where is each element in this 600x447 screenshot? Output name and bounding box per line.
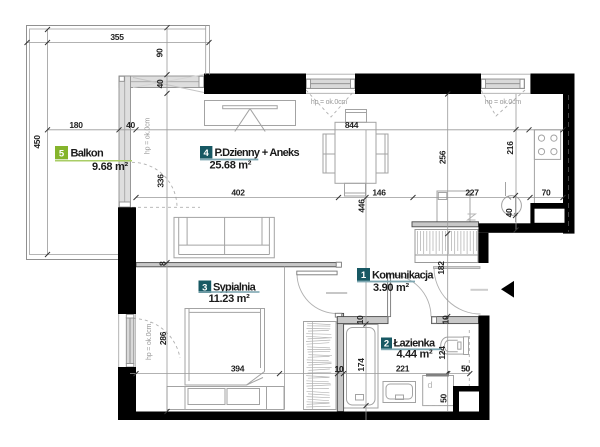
svg-text:P.Dzienny + Aneks: P.Dzienny + Aneks — [215, 147, 300, 159]
svg-text:11.23 m²: 11.23 m² — [209, 293, 251, 305]
svg-text:3.90 m²: 3.90 m² — [373, 282, 409, 294]
svg-text:146: 146 — [372, 188, 386, 198]
svg-text:hp = ok.0cm: hp = ok.0cm — [311, 99, 347, 106]
svg-text:5: 5 — [59, 148, 65, 159]
svg-text:446: 446 — [357, 199, 367, 213]
svg-text:221: 221 — [396, 364, 410, 374]
svg-text:4: 4 — [204, 148, 210, 159]
svg-text:256: 256 — [438, 150, 448, 164]
svg-text:10: 10 — [441, 315, 451, 324]
svg-text:40: 40 — [126, 120, 135, 130]
svg-text:336: 336 — [156, 174, 166, 188]
svg-text:70: 70 — [542, 188, 551, 198]
svg-text:40: 40 — [155, 79, 165, 88]
svg-text:450: 450 — [32, 135, 42, 149]
svg-text:8: 8 — [158, 261, 168, 266]
svg-text:174: 174 — [356, 358, 366, 372]
svg-text:124: 124 — [437, 346, 447, 360]
svg-text:50: 50 — [461, 364, 470, 374]
svg-text:Komunikacja: Komunikacja — [372, 270, 434, 282]
svg-text:9.68 m²: 9.68 m² — [92, 161, 128, 173]
svg-text:d: d — [428, 380, 433, 390]
svg-text:10: 10 — [335, 364, 344, 374]
svg-text:hp = ok.0cm: hp = ok.0cm — [145, 118, 152, 154]
svg-text:25.68 m²: 25.68 m² — [210, 160, 252, 172]
svg-text:40: 40 — [504, 208, 514, 217]
svg-text:844: 844 — [345, 120, 359, 130]
svg-text:Balkon: Balkon — [71, 148, 104, 160]
svg-text:hp = ok.0cm: hp = ok.0cm — [485, 99, 521, 106]
svg-text:50: 50 — [439, 394, 449, 403]
svg-text:180: 180 — [69, 120, 83, 130]
svg-text:216: 216 — [505, 141, 515, 155]
svg-text:355: 355 — [110, 32, 124, 42]
svg-text:4.44 m²: 4.44 m² — [397, 349, 433, 361]
svg-text:10: 10 — [355, 315, 365, 324]
svg-text:402: 402 — [231, 188, 245, 198]
svg-text:182: 182 — [436, 261, 446, 275]
svg-text:90: 90 — [155, 48, 165, 57]
svg-text:hp = ok.0cm.: hp = ok.0cm. — [146, 322, 153, 360]
svg-text:1: 1 — [361, 270, 367, 281]
svg-text:2: 2 — [384, 338, 389, 349]
svg-text:394: 394 — [231, 364, 245, 374]
svg-text:286: 286 — [158, 331, 168, 345]
svg-text:227: 227 — [465, 188, 479, 198]
